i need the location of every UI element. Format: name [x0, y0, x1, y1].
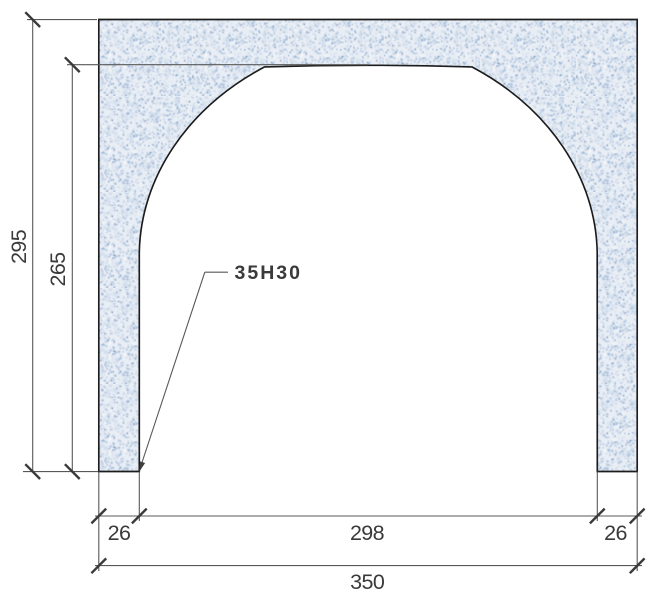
svg-text:26: 26 [108, 521, 131, 545]
svg-text:295: 295 [7, 229, 31, 264]
svg-text:350: 350 [350, 570, 385, 594]
svg-text:298: 298 [350, 521, 385, 545]
svg-text:265: 265 [46, 252, 70, 287]
svg-text:26: 26 [604, 521, 627, 545]
svg-text:35H30: 35H30 [235, 262, 302, 284]
